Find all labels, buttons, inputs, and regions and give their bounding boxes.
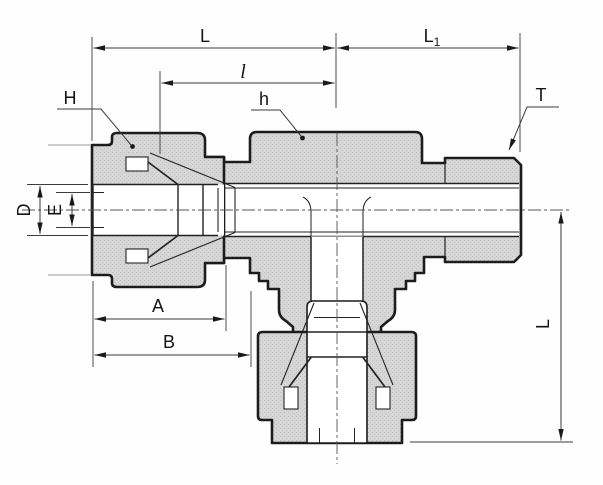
leader-label-h: h: [259, 89, 269, 109]
dim-D: D: [14, 186, 40, 234]
dim-label-E: E: [45, 204, 65, 216]
drawing-canvas: L L1 l A B D E L H h T: [0, 0, 603, 485]
dim-B: B: [95, 332, 250, 355]
dim-L: L: [94, 26, 335, 48]
dim-label-D: D: [14, 204, 34, 217]
dim-L-vertical: L: [533, 212, 561, 441]
dim-label-l: l: [240, 61, 246, 83]
dim-L1: L1: [338, 26, 519, 49]
dim-A: A: [95, 296, 225, 319]
leader-label-T: T: [536, 85, 547, 105]
dim-label-A: A: [152, 296, 164, 316]
dim-l: l: [162, 61, 335, 83]
leader-T: T: [509, 85, 559, 150]
dim-label-B: B: [163, 332, 175, 352]
dim-label-L1: L1: [424, 26, 441, 49]
dim-label-L-vertical: L: [533, 319, 553, 329]
fitting-dimension-drawing: L L1 l A B D E L H h T: [0, 0, 603, 485]
dim-label-L: L: [200, 26, 210, 46]
leader-label-H: H: [64, 88, 77, 108]
